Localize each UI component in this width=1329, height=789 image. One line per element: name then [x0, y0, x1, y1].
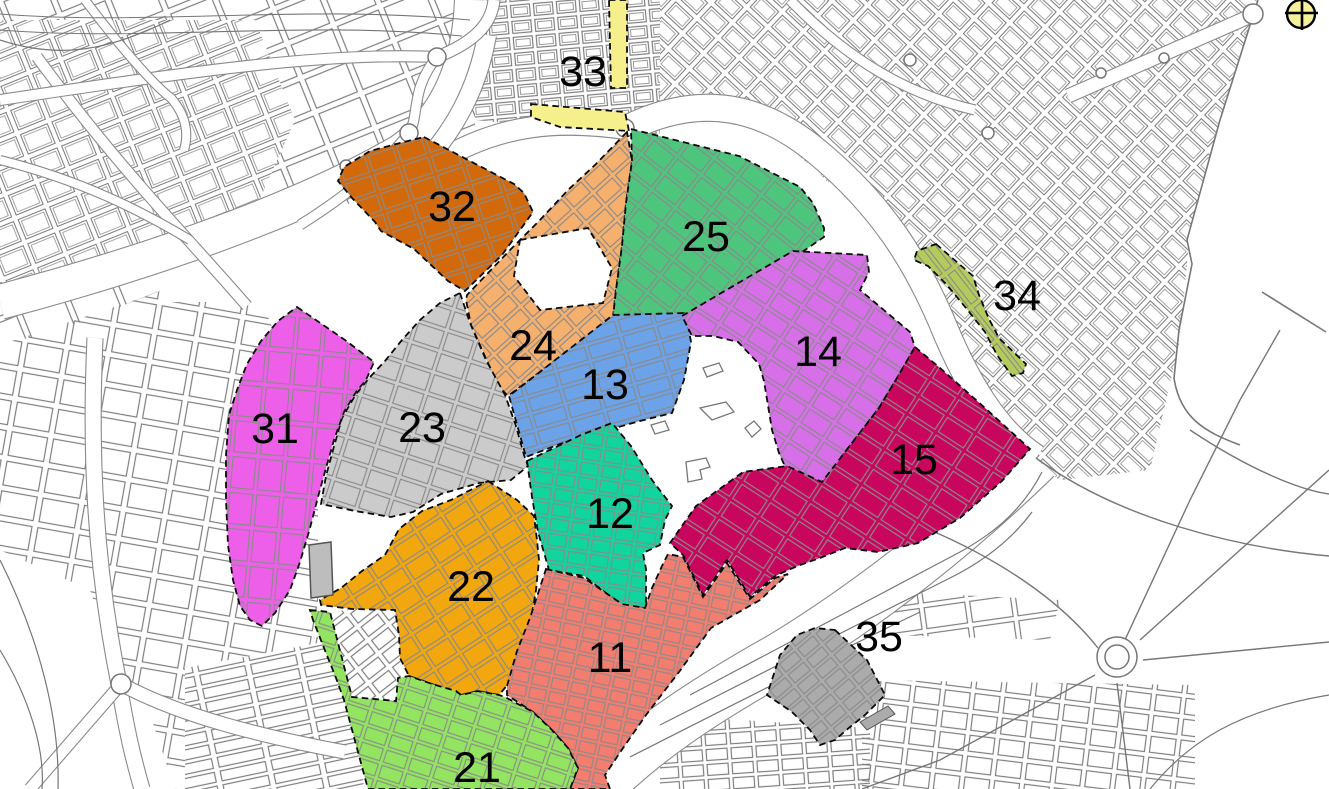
svg-text:33: 33 — [559, 48, 607, 96]
svg-text:24: 24 — [509, 322, 557, 370]
svg-text:31: 31 — [251, 405, 299, 453]
svg-text:14: 14 — [794, 328, 842, 376]
svg-text:32: 32 — [428, 183, 476, 231]
svg-text:35: 35 — [855, 613, 903, 661]
svg-text:13: 13 — [581, 361, 629, 409]
svg-text:15: 15 — [890, 436, 938, 484]
svg-text:21: 21 — [453, 744, 501, 789]
svg-text:12: 12 — [586, 490, 634, 538]
svg-text:23: 23 — [398, 404, 446, 452]
svg-text:22: 22 — [447, 563, 495, 611]
svg-text:34: 34 — [993, 272, 1041, 320]
svg-text:25: 25 — [682, 213, 730, 261]
svg-text:11: 11 — [588, 634, 633, 682]
